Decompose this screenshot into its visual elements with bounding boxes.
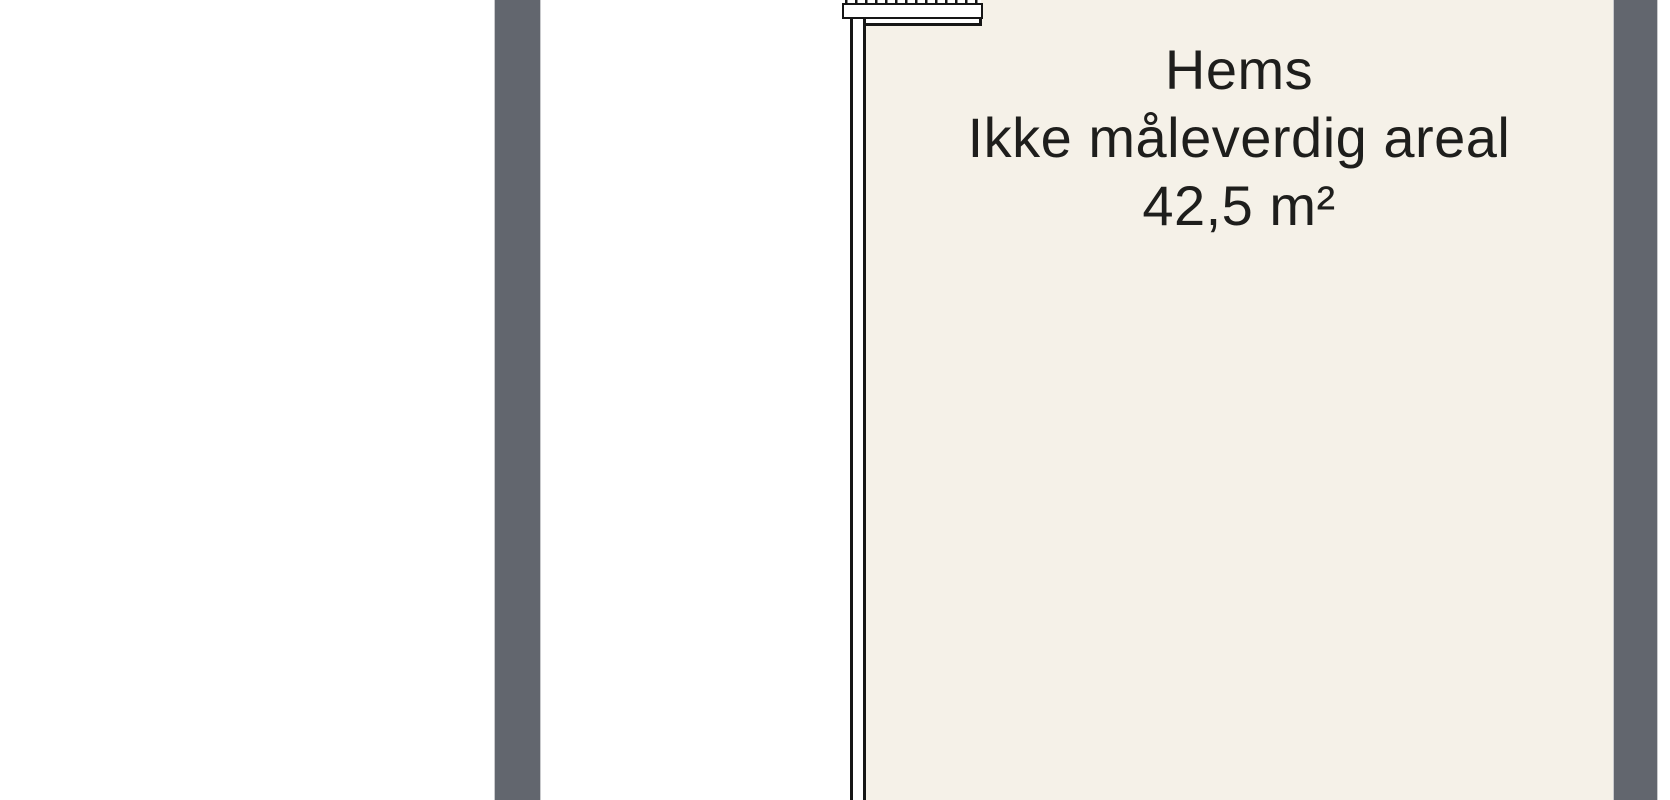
room-area: 42,5 m² [865, 172, 1613, 240]
left-exterior-wall [494, 0, 541, 800]
room-left-partition-wall [850, 16, 866, 800]
right-exterior-wall [1613, 0, 1658, 800]
room-name: Hems [865, 36, 1613, 104]
room-note: Ikke måleverdig areal [865, 104, 1613, 172]
room-label-block: Hems Ikke måleverdig areal 42,5 m² [865, 36, 1613, 240]
floorplan-canvas: Hems Ikke måleverdig areal 42,5 m² [0, 0, 1670, 800]
stair-landing [842, 3, 983, 19]
